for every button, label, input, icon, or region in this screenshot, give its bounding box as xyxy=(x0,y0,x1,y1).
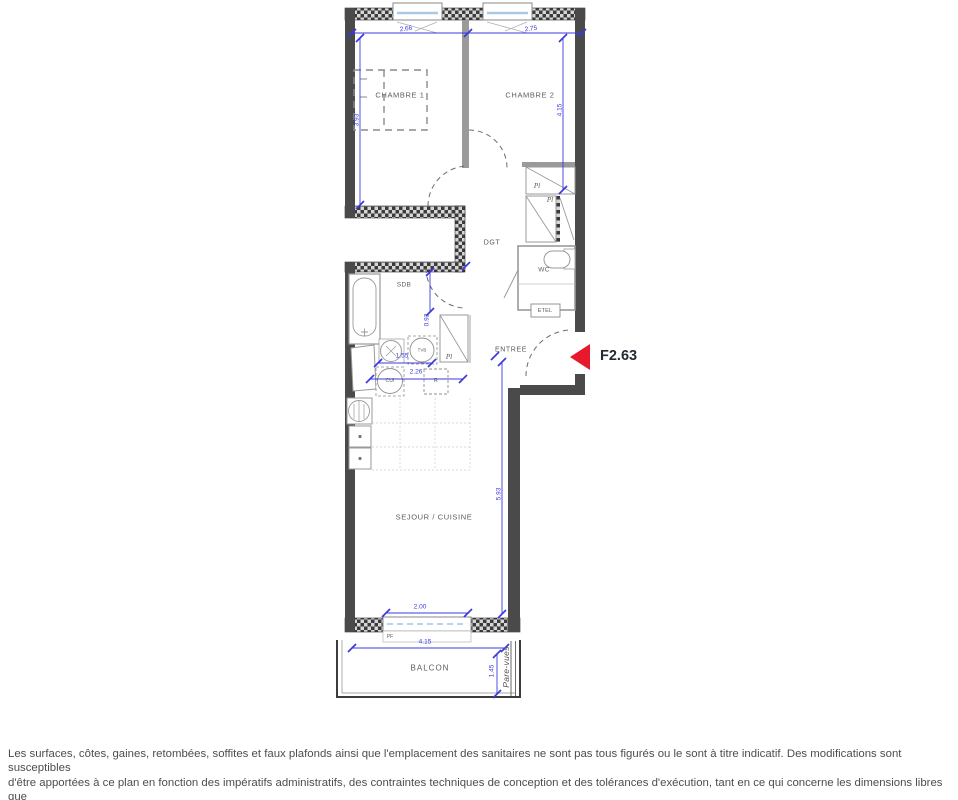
furniture-ticks xyxy=(360,79,367,97)
room-label-entree: ENTREE xyxy=(495,347,527,354)
fridge-label: R xyxy=(434,378,438,384)
disclaimer-text: Les surfaces, côtes, gaines, retombées, … xyxy=(8,747,954,800)
floor-plan-drawing xyxy=(0,0,958,800)
dim-balcony-depth: 1.45 xyxy=(489,665,496,678)
disclaimer-line-2: d'être apportées à ce plan en fonction d… xyxy=(8,776,954,800)
room-label-wc: WC xyxy=(538,267,549,274)
bathtub xyxy=(349,274,380,344)
room-label-chambre1: CHAMBRE 1 xyxy=(375,91,424,100)
dim-pf-width: 2.00 xyxy=(414,604,427,611)
room-label-sdb: SDB xyxy=(397,282,411,289)
wc-door xyxy=(504,270,518,298)
tvb-label: TVB xyxy=(418,348,427,353)
room-label-dgt: DGT xyxy=(484,240,501,247)
room-label-chambre2: CHAMBRE 2 xyxy=(505,91,554,100)
closet-label-pl-2: Pl xyxy=(547,196,553,204)
unit-type-label: F2.63 xyxy=(600,348,637,364)
kitchen-west-run xyxy=(347,398,372,469)
dim-sejour-height: 5.93 xyxy=(496,488,503,501)
cui-label: CUI xyxy=(386,378,395,384)
dim-ch2-height: 4.15 xyxy=(557,104,564,117)
room-label-balcon: BALCON xyxy=(411,664,450,673)
disclaimer-line-1: Les surfaces, côtes, gaines, retombées, … xyxy=(8,747,954,776)
dim-balcony-width: 4.15 xyxy=(419,639,432,646)
room-label-sejour: SEJOUR / CUISINE xyxy=(396,513,473,522)
etel-label: ETEL xyxy=(538,308,553,314)
dim-kitchen-small: 1.55 xyxy=(396,353,409,360)
counter-grid xyxy=(372,398,470,470)
entry-arrow-icon xyxy=(570,344,590,370)
closet-label-pl-1: Pl xyxy=(534,182,540,190)
dim-ch1-height: 3.93 xyxy=(354,114,361,127)
floor-plan-page: CHAMBRE 1 CHAMBRE 2 DGT SDB WC ENTREE SE… xyxy=(0,0,958,800)
closet-label-pl-3: Pl xyxy=(446,353,452,361)
pare-vues-label: Pare-vues xyxy=(501,646,511,687)
dim-sdb-door: 0.92 xyxy=(424,314,431,327)
sdb-cabinet xyxy=(351,345,376,391)
dim-kitchen-large: 2.26 xyxy=(410,369,423,376)
pf-label: PF xyxy=(387,634,394,640)
